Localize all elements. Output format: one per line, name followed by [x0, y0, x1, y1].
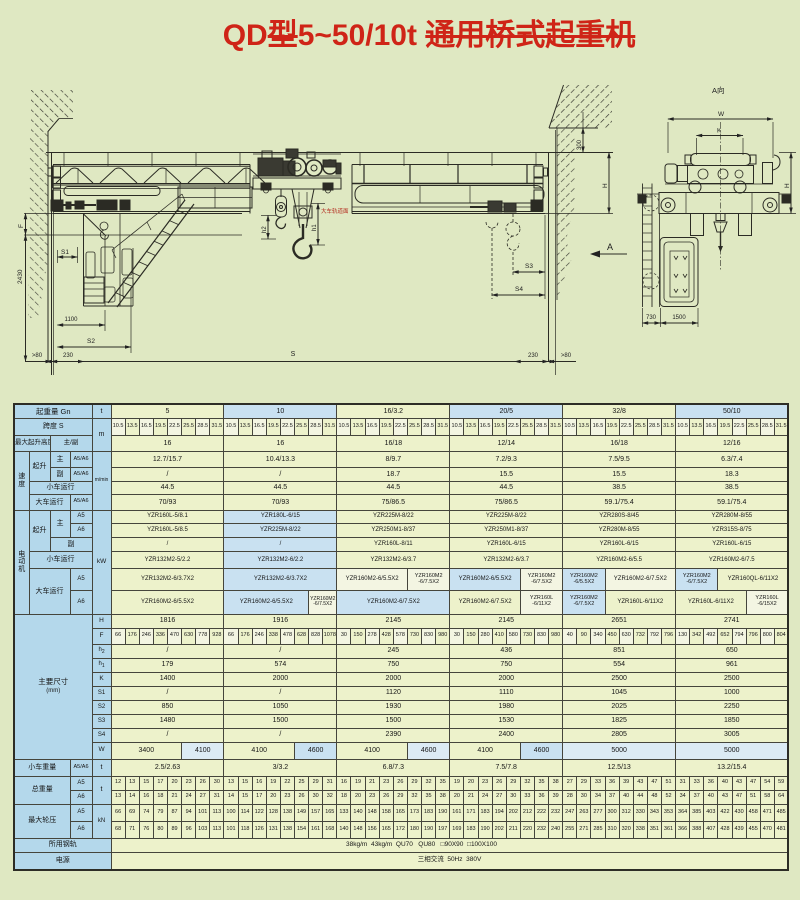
svg-text:730: 730	[646, 315, 657, 321]
svg-text:230: 230	[528, 353, 539, 359]
svg-text:2430: 2430	[17, 269, 24, 284]
svg-text:大车轨道面: 大车轨道面	[321, 207, 349, 215]
svg-text:S: S	[291, 351, 296, 358]
svg-text:F: F	[18, 224, 25, 228]
svg-text:>80: >80	[32, 353, 43, 359]
svg-text:A向: A向	[712, 85, 725, 95]
svg-text:K: K	[717, 128, 722, 135]
svg-text:230: 230	[63, 353, 74, 359]
svg-text:1500: 1500	[672, 315, 686, 321]
svg-text:A: A	[607, 242, 613, 252]
svg-text:S4: S4	[515, 286, 523, 293]
svg-text:S3: S3	[525, 263, 533, 270]
svg-text:>80: >80	[561, 353, 572, 359]
svg-text:300: 300	[577, 139, 583, 150]
svg-text:S2: S2	[87, 338, 95, 345]
svg-text:h1: h1	[312, 224, 318, 231]
svg-text:1100: 1100	[65, 317, 79, 323]
svg-text:H: H	[784, 183, 791, 188]
svg-text:H: H	[602, 183, 609, 188]
svg-text:S1: S1	[61, 249, 69, 256]
svg-text:W: W	[718, 111, 725, 118]
svg-text:h2: h2	[262, 226, 268, 233]
